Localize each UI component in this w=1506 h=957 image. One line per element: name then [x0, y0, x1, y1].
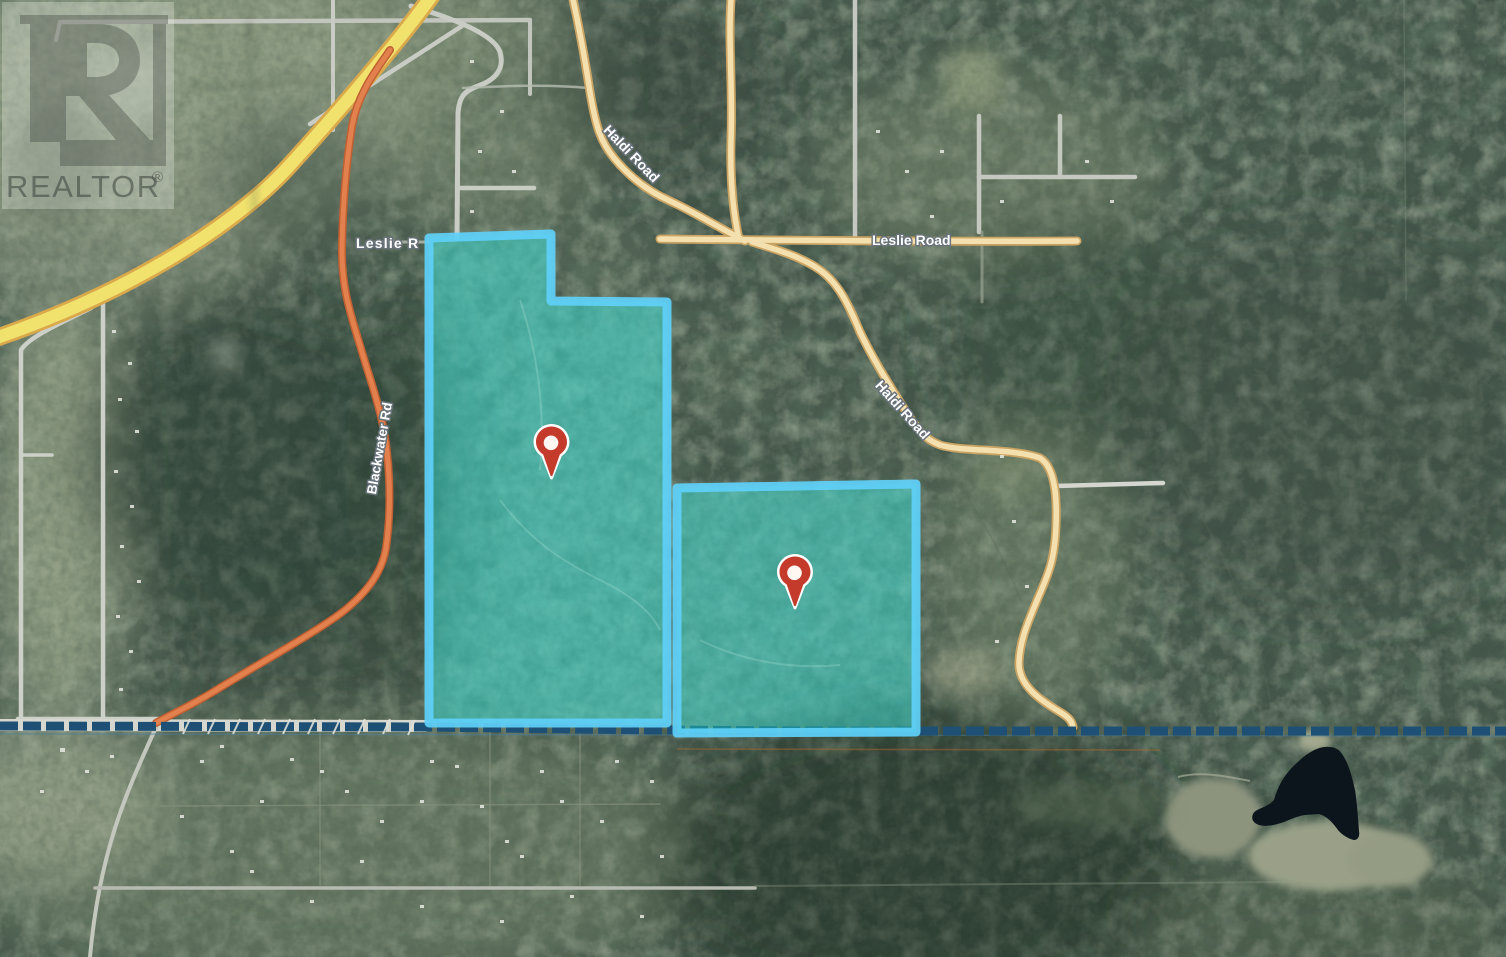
- svg-text:®: ®: [152, 169, 163, 186]
- svg-text:Leslie Road: Leslie Road: [872, 232, 951, 248]
- svg-text:REALTOR: REALTOR: [6, 169, 161, 204]
- svg-text:Leslie R: Leslie R: [356, 235, 419, 251]
